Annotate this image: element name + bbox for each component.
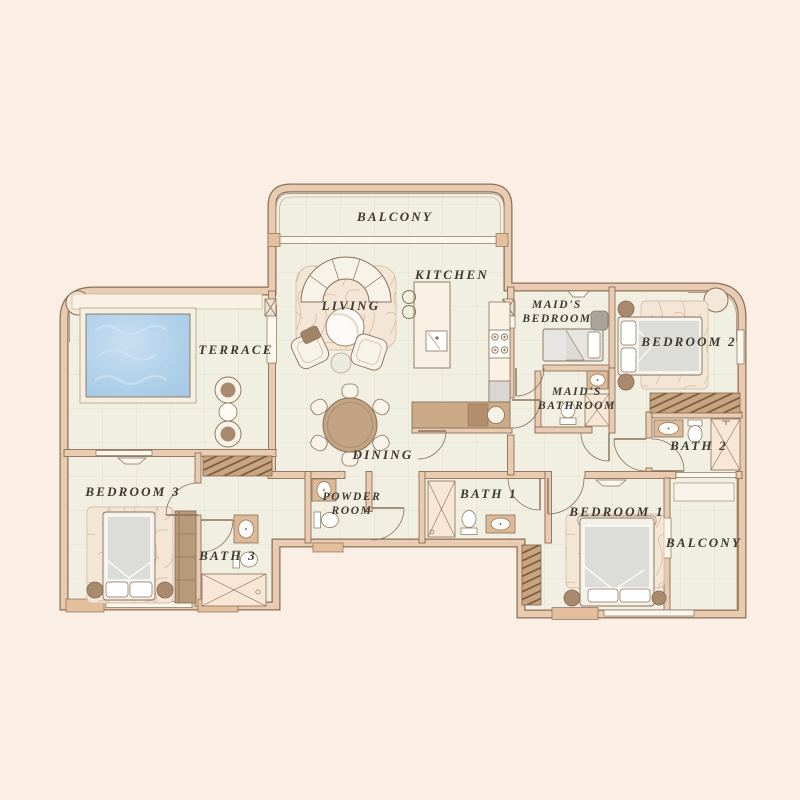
nightstand-icon	[87, 582, 103, 598]
toilet-icon	[314, 512, 339, 528]
terrace-lounge-chairs	[215, 377, 241, 447]
wardrobe-icon	[175, 511, 196, 603]
pool	[86, 314, 190, 397]
kitchen-island-icon	[414, 282, 450, 368]
double-bed-icon	[103, 512, 155, 600]
sink-icon	[486, 515, 515, 533]
double-bed-icon	[578, 516, 656, 606]
nightstand-icon	[564, 590, 580, 606]
floor-plan-page: BALCONY LIVING KITCHEN TERRACE MAID'S BE…	[0, 0, 800, 800]
shower-icon	[428, 481, 455, 537]
side-table-icon	[219, 403, 237, 421]
stove-icon	[489, 330, 510, 358]
lower-counter	[412, 402, 510, 428]
nightstand-icon	[618, 374, 634, 390]
terrace-ledge	[72, 294, 262, 309]
fridge-icon	[489, 381, 510, 402]
closet-icon	[203, 456, 272, 476]
stool-icon	[331, 353, 351, 373]
planter-icon	[674, 483, 734, 501]
chair-icon	[591, 311, 608, 330]
balcony-bottom-right	[674, 483, 734, 501]
wardrobe-icon	[650, 393, 740, 413]
shower-icon	[202, 574, 266, 606]
living-room	[287, 257, 396, 373]
nightstand-icon	[652, 591, 666, 605]
lounge-chair-cushion	[221, 427, 236, 442]
bedroom-3	[87, 507, 196, 603]
round-sink-icon	[488, 407, 505, 424]
sink-icon	[234, 515, 258, 543]
toilet-icon	[560, 402, 576, 425]
sink-icon	[654, 420, 683, 437]
island-sink-icon	[426, 331, 447, 351]
floor-plan-drawing	[0, 0, 800, 800]
nightstand-icon	[157, 582, 173, 598]
shower-icon	[585, 394, 609, 426]
wardrobe-icon	[522, 545, 541, 605]
dining-table-icon	[323, 398, 377, 452]
toilet-icon	[688, 420, 702, 443]
toilet-icon	[233, 551, 258, 568]
nightstand-icon	[618, 301, 634, 317]
toilet-icon	[461, 511, 477, 535]
lounge-chair-cushion	[221, 383, 236, 398]
shower-icon	[711, 419, 740, 470]
sink-icon	[312, 479, 336, 501]
double-bed-icon	[618, 317, 702, 375]
sink-icon	[587, 371, 608, 389]
single-bed-icon	[543, 329, 603, 361]
